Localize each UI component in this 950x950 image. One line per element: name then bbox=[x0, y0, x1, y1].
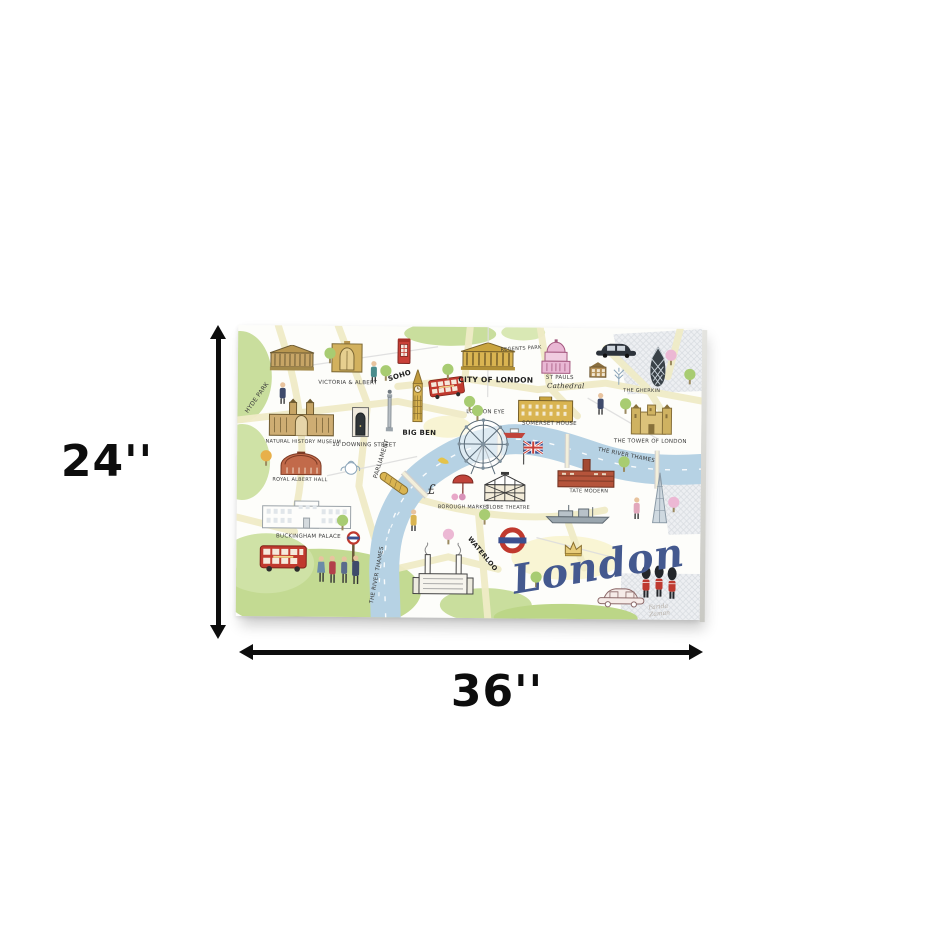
treePink-icon bbox=[442, 528, 455, 545]
red-bus bbox=[259, 545, 307, 572]
buckingham-palace-label-text: BUCKINGHAM PALACE bbox=[276, 534, 341, 540]
winter-tree bbox=[611, 367, 627, 386]
tree-icon bbox=[336, 514, 349, 531]
red-phone-box bbox=[397, 338, 410, 364]
boat-icon bbox=[502, 428, 526, 439]
monument-column bbox=[385, 389, 394, 433]
natural-history-museum-label: NATURAL HISTORY MUSEUM bbox=[265, 440, 341, 446]
brown-townhouse bbox=[588, 362, 608, 378]
people-group bbox=[316, 555, 362, 585]
tree-icon bbox=[323, 347, 336, 364]
door-icon bbox=[352, 407, 369, 437]
roundel-icon bbox=[497, 525, 527, 555]
somerset-house-label-text: SOMERSET HOUSE bbox=[522, 422, 577, 428]
treePink-icon bbox=[667, 496, 680, 513]
teapot bbox=[339, 459, 361, 475]
lady-in-yellow bbox=[408, 509, 419, 532]
tree-icon bbox=[379, 365, 392, 382]
blossom-icon bbox=[450, 492, 467, 501]
green-tree-8 bbox=[478, 509, 491, 526]
orange-tree bbox=[260, 450, 273, 467]
hms-belfast-ship bbox=[545, 505, 611, 526]
green-tree-3 bbox=[441, 363, 454, 380]
somerset-house bbox=[517, 396, 573, 422]
battersea-icon bbox=[411, 541, 475, 596]
green-tree-9 bbox=[618, 456, 631, 473]
personNavy-icon bbox=[595, 393, 606, 416]
big-ben bbox=[410, 369, 425, 423]
tower-of-london bbox=[629, 403, 673, 436]
pound-sign: £ bbox=[428, 484, 437, 498]
big-ben-label-text: BIG BEN bbox=[402, 430, 436, 438]
treeOrange-icon bbox=[260, 450, 273, 467]
tree-icon bbox=[619, 398, 632, 415]
width-dimension-label: 36'' bbox=[442, 666, 552, 717]
natural-history-museum-label-text: NATURAL HISTORY MUSEUM bbox=[265, 440, 341, 446]
pound-sign-text: £ bbox=[428, 484, 437, 498]
green-tree-6 bbox=[619, 398, 632, 415]
st-pauls-script-label-text: Cathedral bbox=[547, 383, 585, 391]
shard-icon bbox=[651, 473, 669, 525]
column-icon bbox=[385, 389, 394, 433]
river-thames-label-south-text: THE RIVER THAMES bbox=[370, 546, 386, 604]
pink-tree-1 bbox=[664, 349, 677, 366]
somerset-house-label: SOMERSET HOUSE bbox=[522, 422, 577, 428]
st-pauls-label-text: ST PAULS bbox=[546, 376, 574, 382]
stpauls-icon bbox=[541, 339, 571, 374]
royal-albert-hall-label: ROYAL ALBERT HALL bbox=[272, 478, 327, 484]
product-dimension-image: 24'' 36'' bbox=[0, 0, 950, 950]
british-museum bbox=[269, 345, 315, 372]
width-arrow bbox=[252, 650, 690, 655]
green-tree-5 bbox=[463, 395, 476, 412]
st-pauls-cathedral bbox=[541, 339, 571, 374]
bus-icon bbox=[259, 545, 307, 572]
people-icon bbox=[316, 555, 362, 585]
somerset-icon bbox=[517, 396, 573, 422]
museum-icon bbox=[269, 345, 315, 372]
tower-of-london-label-text: THE TOWER OF LONDON bbox=[614, 439, 687, 445]
globe-theatre bbox=[481, 472, 529, 503]
st-pauls-script-label: Cathedral bbox=[547, 383, 585, 391]
tourist-with-bag bbox=[368, 361, 379, 384]
big-ben-label: BIG BEN bbox=[402, 430, 436, 438]
taxiblack-icon bbox=[595, 341, 637, 358]
city-of-london-label: CITY OF LONDON bbox=[458, 376, 533, 385]
tree-icon bbox=[618, 456, 631, 473]
regents-park-label-text: REGENTS PARK bbox=[500, 346, 541, 354]
royal-albert-hall bbox=[279, 451, 323, 475]
ship-icon bbox=[545, 505, 611, 526]
natural-history-museum bbox=[267, 398, 335, 437]
personYellow-icon bbox=[408, 509, 419, 532]
personTeal-icon bbox=[368, 361, 379, 384]
towercastle-icon bbox=[629, 403, 673, 436]
woman-in-pink bbox=[631, 497, 642, 520]
wintertree-icon bbox=[611, 367, 627, 386]
goldbar-icon bbox=[377, 469, 410, 497]
tree-icon bbox=[441, 363, 454, 380]
green-tree-2 bbox=[379, 365, 392, 382]
bigben-icon bbox=[410, 369, 425, 423]
city-of-london-label-text: CITY OF LONDON bbox=[458, 376, 533, 385]
ujflag-icon bbox=[522, 440, 545, 464]
globe-theatre-label-text: GLOBE THEATRE bbox=[485, 506, 530, 512]
pink-tree-2 bbox=[667, 496, 680, 513]
royal-albert-hall-label-text: ROYAL ALBERT HALL bbox=[272, 478, 327, 484]
teapot-icon bbox=[339, 459, 361, 475]
regents-park-label: REGENTS PARK bbox=[500, 346, 541, 354]
tree-icon bbox=[683, 368, 696, 385]
tree-icon bbox=[463, 395, 476, 412]
yellow-bird bbox=[437, 455, 450, 464]
canvas-artwork-london-map: VICTORIA & ALBERTSOHOBIG BENREGENTS PARK… bbox=[236, 325, 703, 620]
eye-icon bbox=[455, 418, 512, 476]
the-shard bbox=[651, 473, 669, 525]
phonebox-icon bbox=[397, 338, 410, 364]
tate-modern-label: TATE MODERN bbox=[569, 489, 608, 495]
underground-roundel bbox=[497, 525, 527, 555]
green-tree-7 bbox=[683, 368, 696, 385]
black-taxi bbox=[595, 341, 637, 358]
man-in-navy-coat bbox=[595, 393, 606, 416]
height-dimension-label: 24'' bbox=[52, 436, 162, 487]
downing-street-door bbox=[352, 407, 369, 437]
globe-theatre-label: GLOBE THEATRE bbox=[485, 506, 530, 512]
height-arrow bbox=[216, 338, 221, 626]
battersea-power-station bbox=[411, 541, 475, 596]
treePink-icon bbox=[664, 349, 677, 366]
pink-tree-3 bbox=[442, 528, 455, 545]
market-blossoms bbox=[450, 492, 467, 501]
union-jack-flag bbox=[522, 440, 545, 464]
green-tree-10 bbox=[336, 514, 349, 531]
house-icon bbox=[588, 362, 608, 378]
buckingham-palace-label: BUCKINGHAM PALACE bbox=[276, 534, 341, 540]
nhm-icon bbox=[267, 398, 335, 437]
st-pauls-label: ST PAULS bbox=[546, 376, 574, 382]
tree-icon bbox=[478, 509, 491, 526]
red-boat bbox=[502, 428, 526, 439]
river-pier bbox=[377, 469, 410, 497]
green-tree-1 bbox=[323, 347, 336, 364]
london-eye bbox=[455, 418, 512, 476]
tower-of-london-label: THE TOWER OF LONDON bbox=[614, 439, 687, 445]
bird-icon bbox=[437, 455, 450, 464]
gherkin-label: THE GHERKIN bbox=[623, 389, 660, 395]
tate-modern-label-text: TATE MODERN bbox=[569, 489, 608, 495]
river-thames-label-south: THE RIVER THAMES bbox=[370, 546, 386, 604]
gherkin-label-text: THE GHERKIN bbox=[623, 389, 660, 395]
tate-modern bbox=[556, 459, 616, 490]
globe-icon bbox=[481, 472, 529, 503]
tate-icon bbox=[556, 459, 616, 490]
personPink-icon bbox=[631, 497, 642, 520]
rah-icon bbox=[279, 451, 323, 475]
